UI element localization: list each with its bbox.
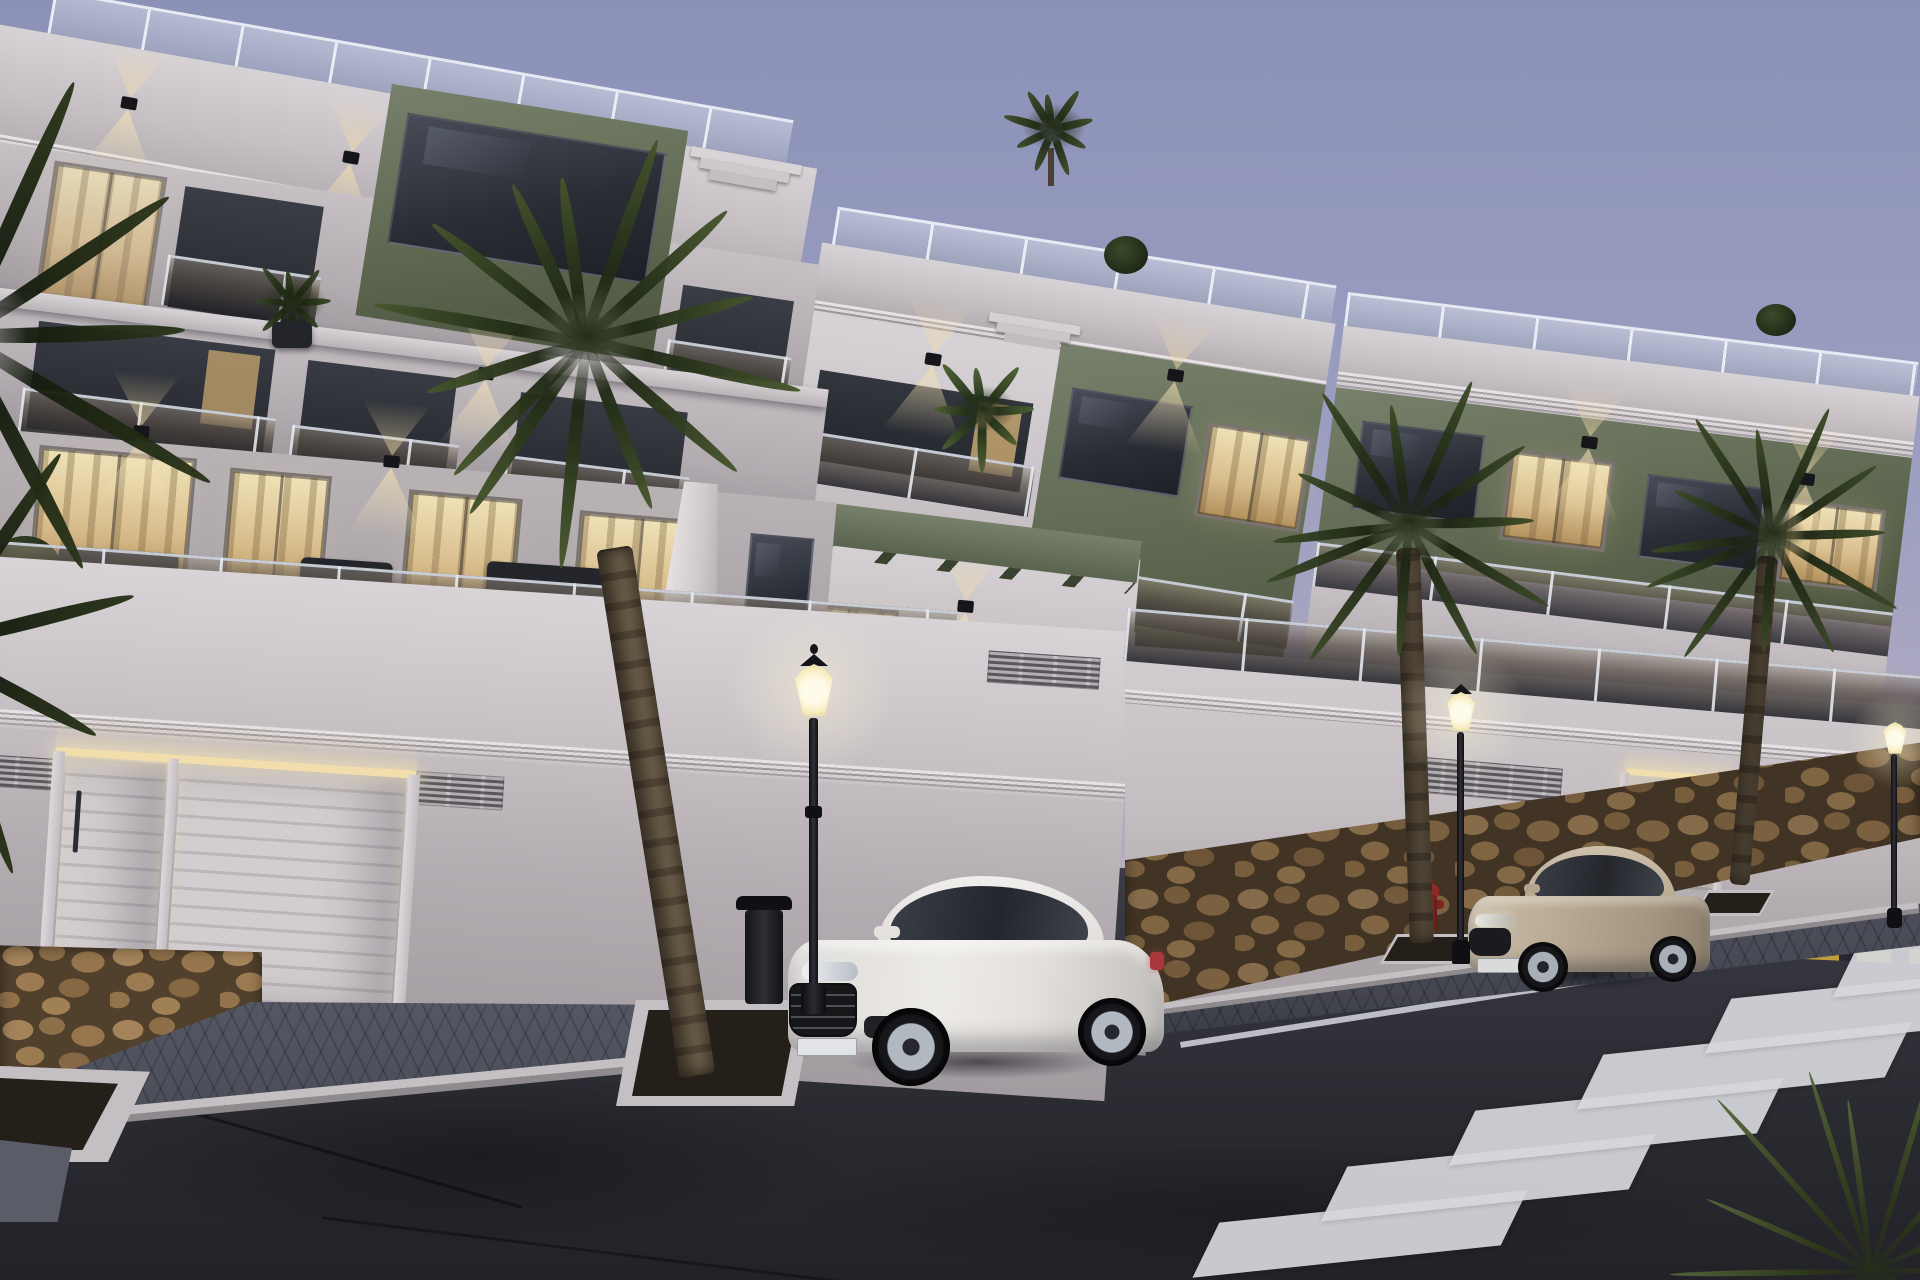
garage-vent-grille xyxy=(987,651,1101,690)
street-lamp-3 xyxy=(1872,712,1920,932)
rooftop-shrub xyxy=(1756,304,1796,336)
street-lamp-1 xyxy=(776,648,866,1028)
wall-sconce-icon xyxy=(342,150,360,165)
car-wheel-front xyxy=(872,1008,950,1086)
lamp-base xyxy=(1887,908,1902,928)
planter-soil xyxy=(632,1010,798,1096)
planter-soil xyxy=(0,1078,118,1150)
rooftop-shrub xyxy=(1104,236,1148,274)
lamp-finial xyxy=(810,644,818,654)
car-taillight xyxy=(1150,952,1164,970)
car-glass xyxy=(890,886,1088,944)
lamp-base xyxy=(1452,940,1470,964)
wall-sconce-icon xyxy=(120,96,138,111)
car-beige-coupe xyxy=(1468,842,1716,1000)
rooftop-tree-trunk xyxy=(1048,148,1054,186)
garage-vent-grille xyxy=(414,771,504,811)
lamp-pole xyxy=(1457,732,1464,944)
lamp-halo xyxy=(1842,686,1920,796)
lamp-base xyxy=(801,984,826,1014)
car-wheel-rear xyxy=(1078,998,1146,1066)
street-lamp-2 xyxy=(1432,678,1496,978)
lamp-collar xyxy=(805,806,822,818)
door-handle xyxy=(73,790,82,852)
car-mirror xyxy=(1524,884,1540,893)
wall-sconce-icon xyxy=(383,455,400,468)
balcony-pot xyxy=(272,322,312,348)
car-plate xyxy=(797,1038,857,1056)
car-mirror xyxy=(874,926,900,938)
large-dark-window xyxy=(387,113,666,284)
lamp-pole xyxy=(1891,754,1897,910)
car-glass xyxy=(1534,855,1664,897)
lamp-pole xyxy=(809,718,818,990)
car-wheel-front xyxy=(1518,942,1568,992)
scene-stage: Dusk 3D architectural rendering of a mod… xyxy=(0,0,1920,1280)
car-wheel-rear xyxy=(1650,936,1696,982)
